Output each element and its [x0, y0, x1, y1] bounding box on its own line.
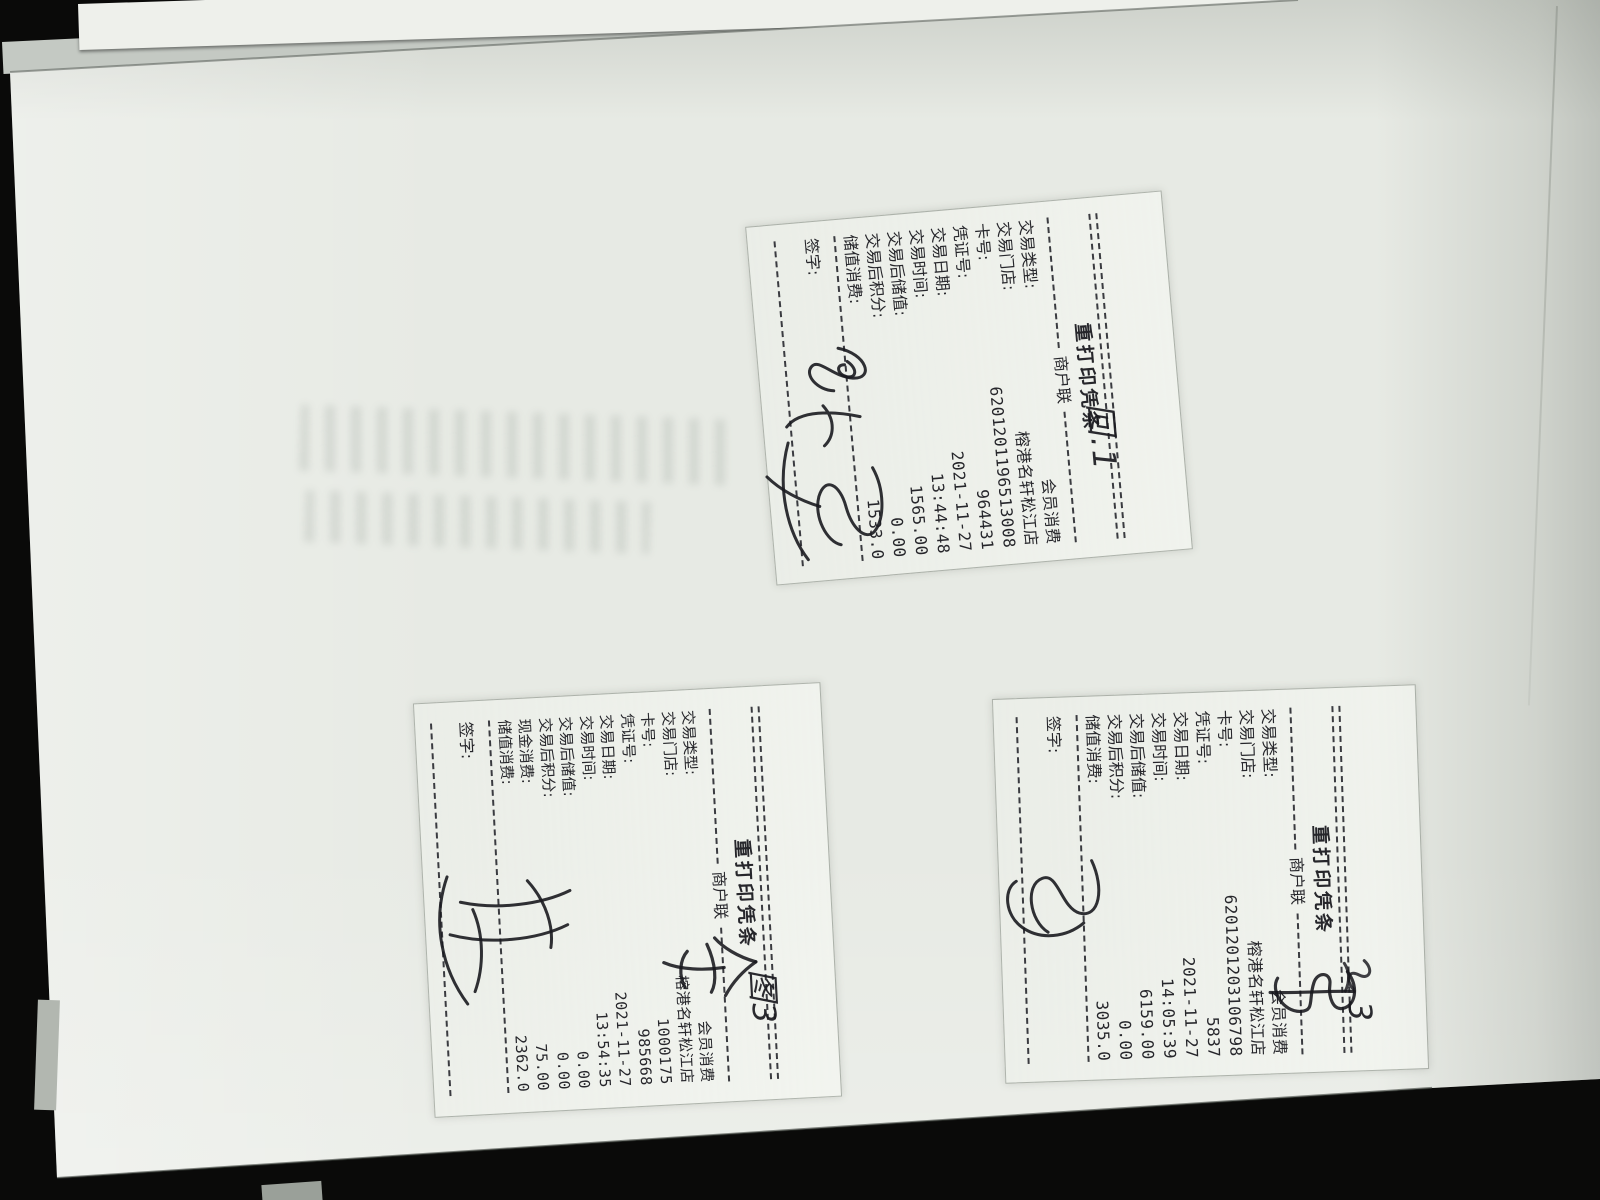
- field-value: 0.00: [572, 1050, 594, 1089]
- field-label: 交易后积分:: [534, 717, 559, 798]
- field-value: 2362.0: [510, 1035, 533, 1093]
- field-label: 交易门店:: [1234, 709, 1258, 779]
- signature-scribble: [747, 327, 916, 569]
- field-label: 卡号:: [970, 222, 995, 261]
- field-label: 交易后储值:: [1124, 713, 1149, 799]
- handwritten-mark-1: 回.1: [1078, 401, 1130, 473]
- field-label: 卡号:: [636, 712, 658, 748]
- sign-label: 签字:: [1044, 716, 1064, 754]
- field-value: 985668: [632, 1028, 655, 1086]
- field-value: 5837: [1201, 1017, 1224, 1058]
- field-value: 14:05:39: [1156, 978, 1181, 1060]
- signature-scribble: [997, 834, 1111, 968]
- field-label: 交易时间:: [1146, 712, 1170, 782]
- dash-segment: [1289, 708, 1296, 849]
- field-label: 交易后积分:: [1103, 713, 1128, 799]
- sign-label: 签字:: [456, 721, 477, 759]
- handwritten-character: [662, 927, 766, 1002]
- field-value: 3035.0: [1091, 1000, 1115, 1062]
- handwritten-character: [1261, 951, 1363, 1024]
- field-value: 会员消费: [694, 1020, 718, 1083]
- dash-segment: [1063, 412, 1076, 543]
- field-label: 交易日期:: [1168, 711, 1192, 781]
- dash-segment: [709, 709, 719, 863]
- signature-row: 签字:: [435, 721, 505, 1096]
- field-value: 1000175: [652, 1018, 676, 1086]
- field-label: 储值消费:: [493, 719, 517, 785]
- field-label: 交易类型:: [1256, 708, 1280, 778]
- receipt-slip-2: 重打印凭条 商户联 交易类型:会员消费 交易门店:榕港名轩松江店 卡号:6201…: [992, 684, 1429, 1084]
- field-label: 凭证号:: [1190, 710, 1214, 764]
- signature-scribble: [408, 846, 597, 1025]
- receipt-slip-3: 重打印凭条 商户联 交易类型:会员消费 交易门店:榕港名轩松江店 卡号:1000…: [413, 682, 842, 1118]
- field-label: 交易门店:: [657, 711, 681, 777]
- under-sheet-wedge: [261, 1181, 322, 1200]
- field-label: 交易时间:: [575, 715, 599, 781]
- field-label: 交易日期:: [595, 714, 619, 780]
- field-label: 现金消费:: [514, 718, 538, 784]
- field-label: 交易后储值:: [555, 716, 580, 797]
- copy-label: 商户联: [1284, 857, 1310, 906]
- field-value: 0.00: [552, 1051, 574, 1090]
- field-label: 储值消费:: [1081, 714, 1105, 784]
- receipt-slip-1: 重打印凭条 商户联 交易类型:会员消费 交易门店:榕港名轩松江店 卡号:6201…: [745, 190, 1193, 585]
- field-value: 0.00: [1113, 1020, 1136, 1061]
- copy-label: 商户联: [1048, 355, 1076, 405]
- sign-label: 签字:: [801, 237, 823, 276]
- photo-scene: 重打印凭条 商户联 交易类型:会员消费 交易门店:榕港名轩松江店 卡号:6201…: [0, 0, 1600, 1200]
- field-value: 13:54:35: [591, 1011, 615, 1088]
- field-value: 6159.00: [1134, 989, 1158, 1061]
- under-sheet-corner: [34, 1000, 60, 1111]
- dash-segment: [1046, 217, 1059, 348]
- field-label: 交易类型:: [677, 710, 701, 776]
- copy-label: 商户联: [706, 871, 732, 920]
- field-value: 2021-11-27: [1177, 957, 1203, 1059]
- field-label: 凭证号:: [616, 713, 639, 764]
- field-label: 卡号:: [1212, 710, 1235, 748]
- field-value: 75.00: [531, 1043, 554, 1092]
- signature-row: 签字:: [1021, 715, 1085, 1064]
